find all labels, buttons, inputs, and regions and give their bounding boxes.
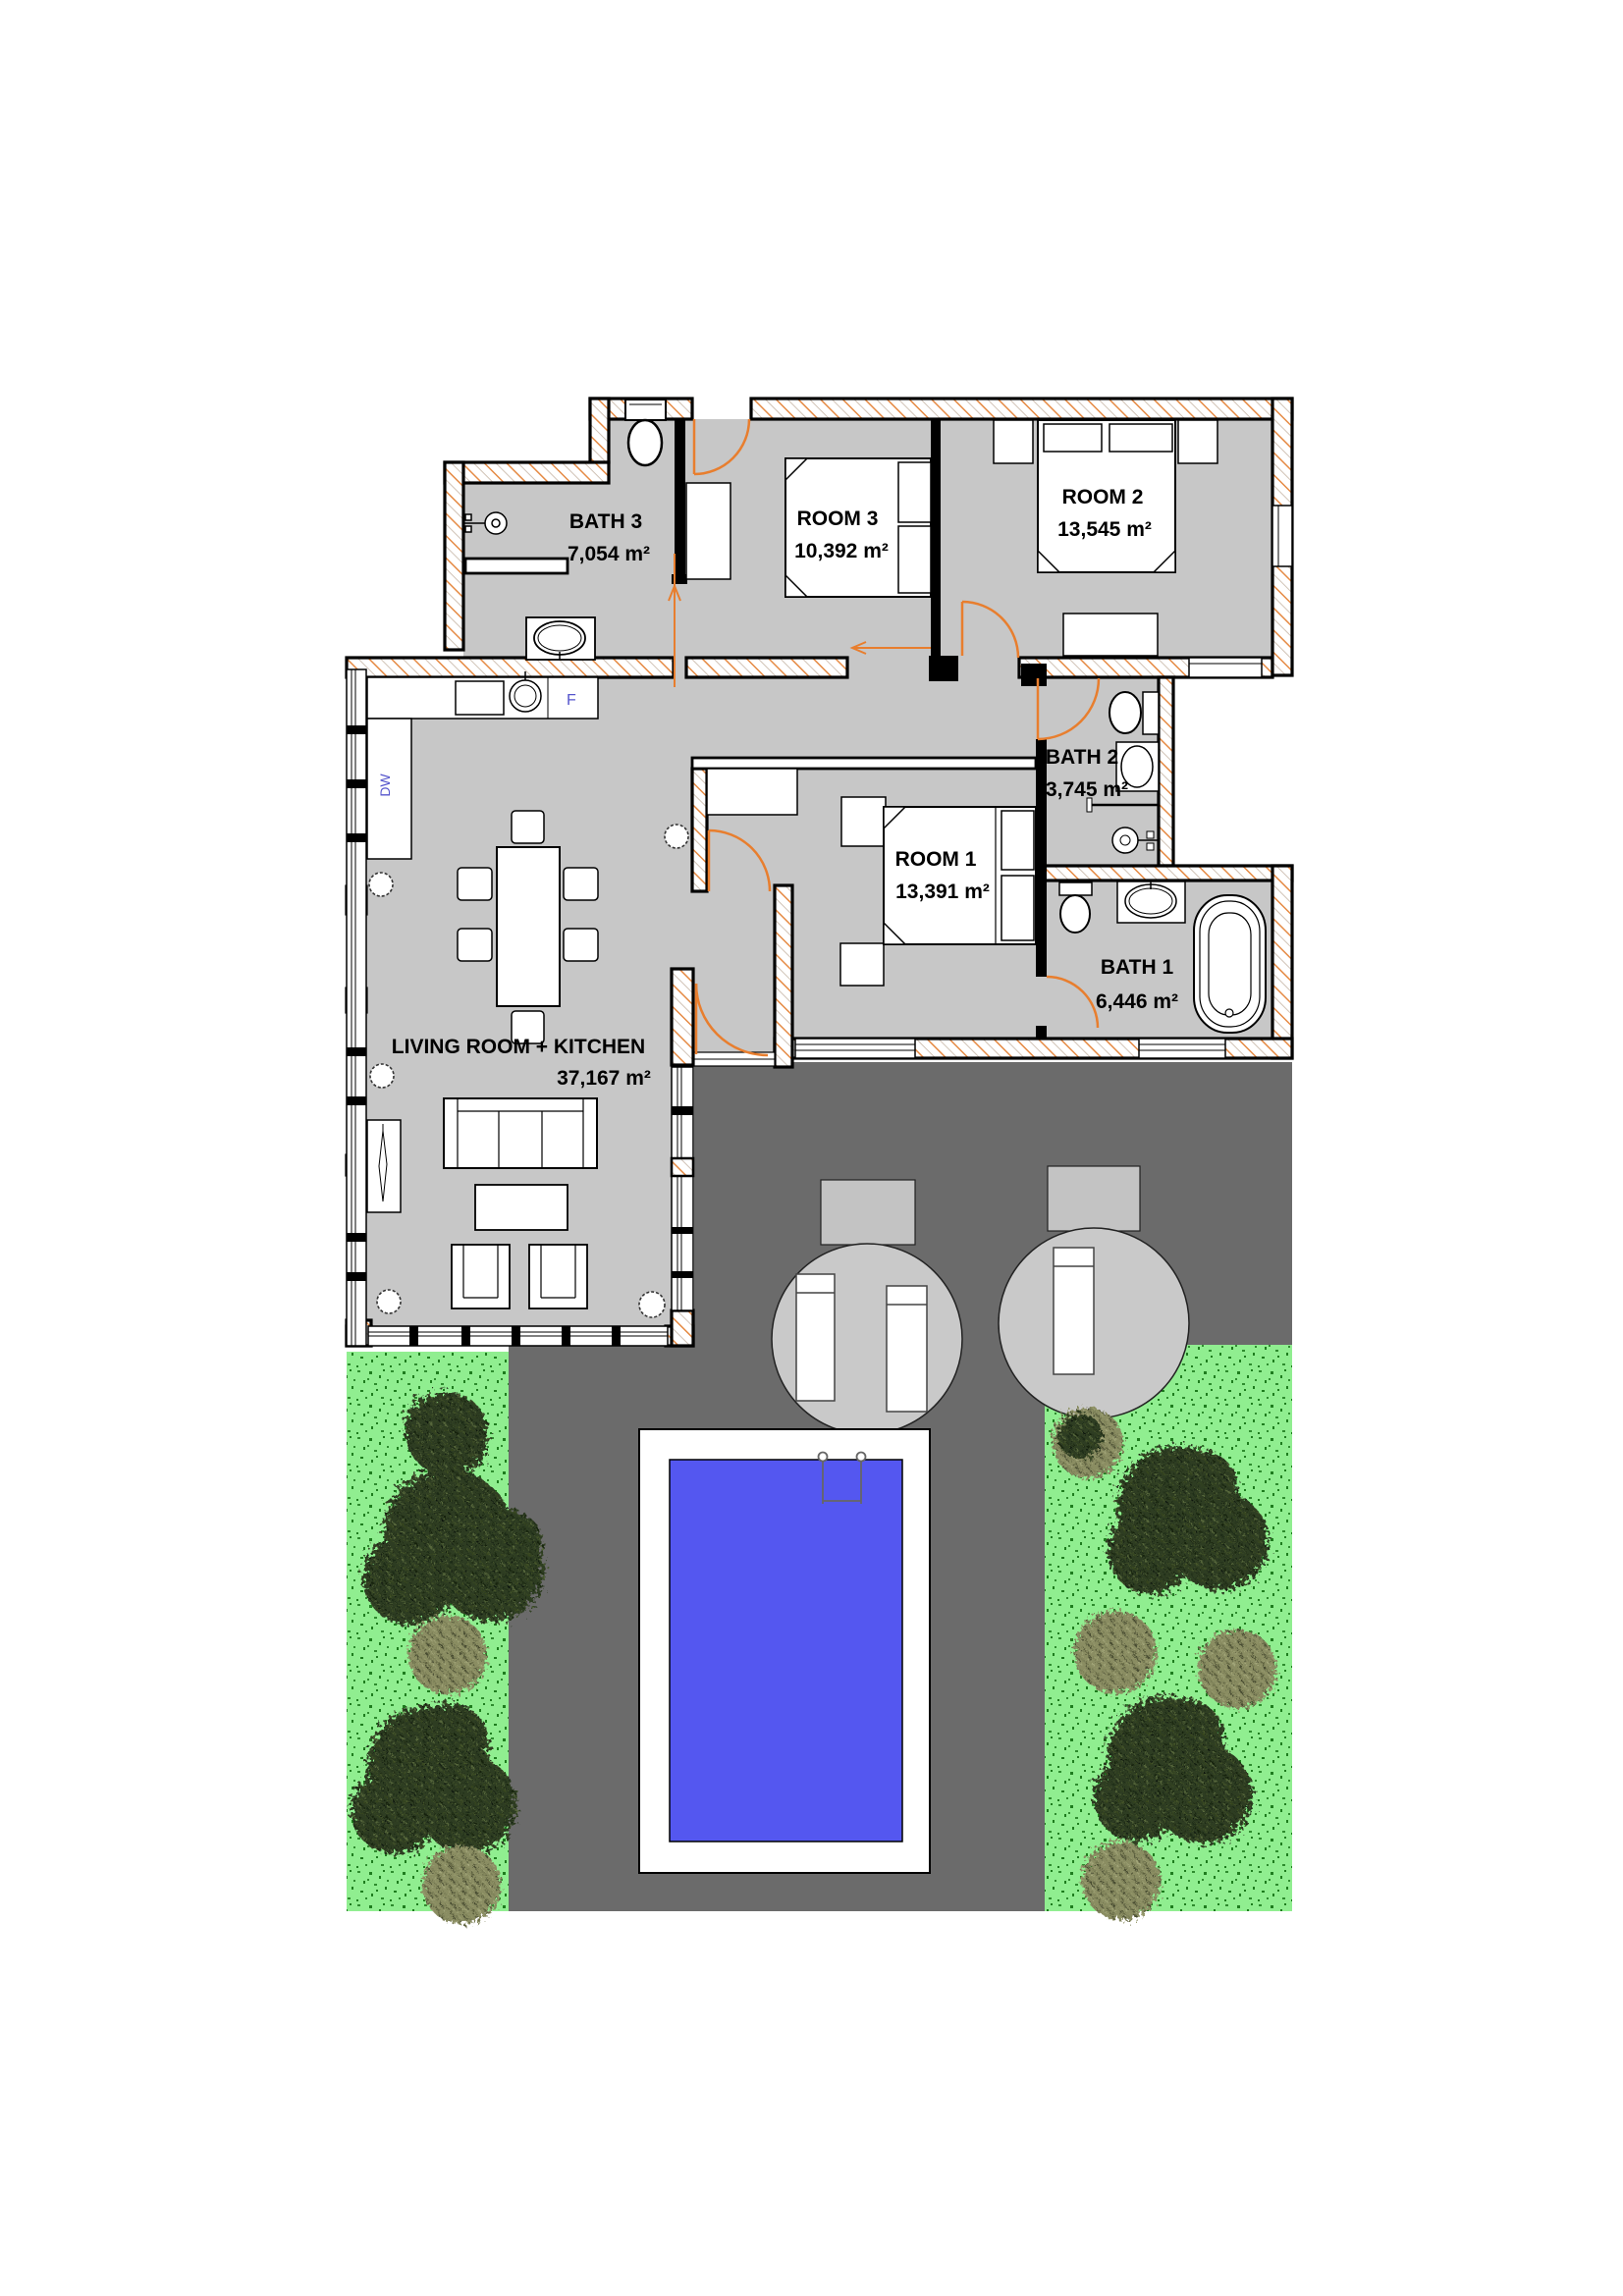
svg-text:ROOM 1: ROOM 1 <box>895 848 977 871</box>
svg-text:LIVING ROOM + KITCHEN: LIVING ROOM + KITCHEN <box>392 1036 645 1058</box>
svg-text:7,054 m²: 7,054 m² <box>568 543 650 565</box>
svg-text:13,391 m²: 13,391 m² <box>895 881 990 903</box>
svg-text:6,446 m²: 6,446 m² <box>1096 990 1178 1013</box>
svg-text:13,545 m²: 13,545 m² <box>1057 518 1152 541</box>
svg-text:BATH 3: BATH 3 <box>569 510 642 533</box>
svg-text:F: F <box>567 692 576 709</box>
svg-text:37,167 m²: 37,167 m² <box>557 1067 651 1090</box>
svg-text:ROOM 3: ROOM 3 <box>797 507 879 530</box>
svg-text:BATH 2: BATH 2 <box>1046 746 1118 769</box>
svg-text:BATH 1: BATH 1 <box>1101 956 1174 979</box>
svg-text:10,392 m²: 10,392 m² <box>794 540 889 562</box>
svg-text:3,745 m²: 3,745 m² <box>1046 778 1128 801</box>
svg-text:DW: DW <box>377 774 393 797</box>
svg-text:ROOM 2: ROOM 2 <box>1062 486 1144 508</box>
